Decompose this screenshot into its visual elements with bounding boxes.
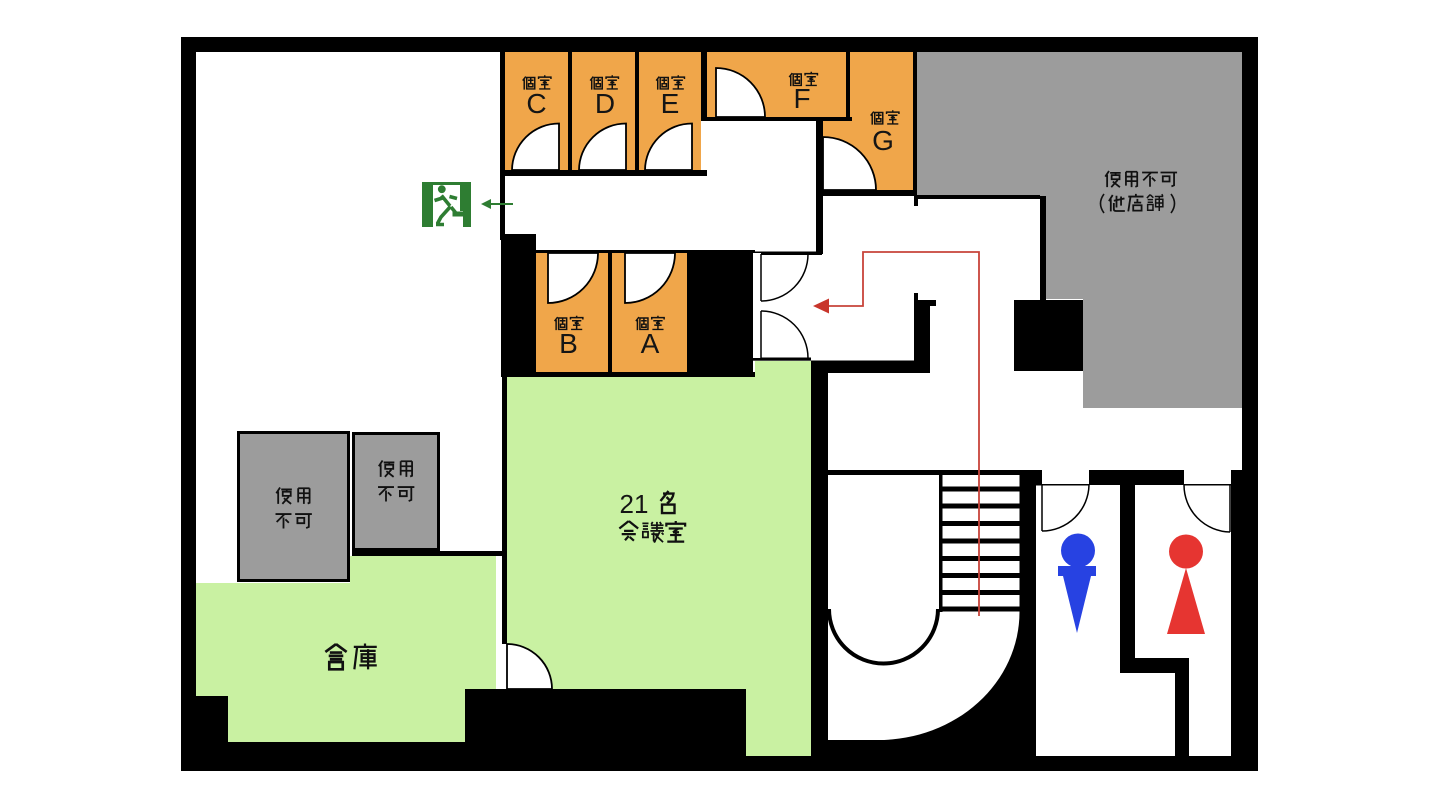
svg-text:A: A bbox=[641, 328, 660, 359]
svg-text:21: 21 bbox=[620, 489, 649, 519]
svg-text:F: F bbox=[793, 83, 810, 114]
svg-text:C: C bbox=[526, 88, 546, 119]
svg-text:E: E bbox=[661, 88, 680, 119]
svg-text:G: G bbox=[872, 125, 894, 156]
svg-text:D: D bbox=[595, 88, 615, 119]
svg-text:B: B bbox=[559, 328, 578, 359]
